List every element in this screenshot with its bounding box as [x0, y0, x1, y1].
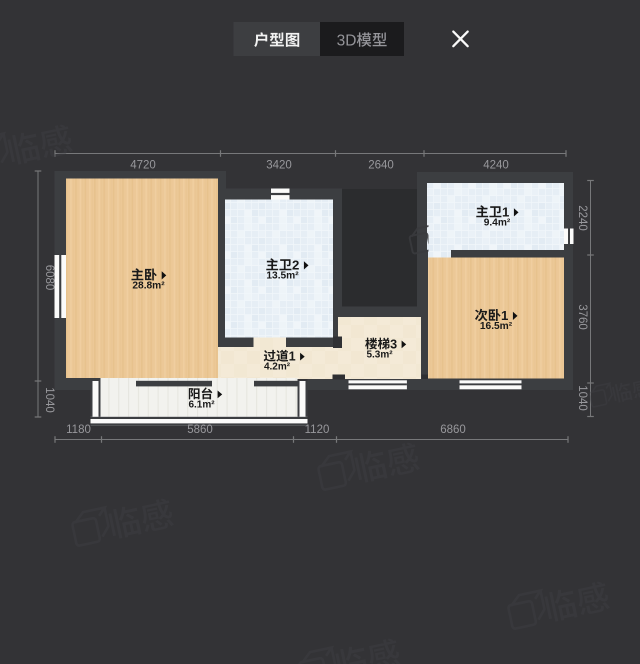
svg-text:13.5m²: 13.5m² — [266, 271, 299, 282]
svg-text:1120: 1120 — [305, 424, 330, 436]
svg-text:2640: 2640 — [368, 160, 394, 172]
svg-text:4720: 4720 — [130, 160, 156, 172]
svg-text:1040: 1040 — [576, 385, 588, 411]
svg-text:3760: 3760 — [576, 304, 588, 330]
svg-text:28.8m²: 28.8m² — [132, 281, 165, 292]
svg-text:1040: 1040 — [43, 387, 55, 413]
svg-text:16.5m²: 16.5m² — [480, 321, 513, 332]
svg-text:3: 3 — [337, 33, 346, 50]
svg-text:6.1m²: 6.1m² — [188, 400, 215, 411]
svg-text:D: D — [345, 33, 356, 50]
svg-text:3420: 3420 — [266, 160, 292, 172]
svg-text:6080: 6080 — [43, 265, 55, 291]
svg-text:1180: 1180 — [66, 424, 91, 436]
svg-text:5860: 5860 — [187, 424, 213, 436]
svg-text:9.4m²: 9.4m² — [484, 218, 511, 229]
svg-text:5.3m²: 5.3m² — [366, 350, 393, 361]
svg-text:6860: 6860 — [440, 424, 466, 436]
svg-text:4.2m²: 4.2m² — [264, 362, 291, 373]
svg-text:4240: 4240 — [483, 160, 509, 172]
svg-text:2240: 2240 — [576, 205, 588, 231]
